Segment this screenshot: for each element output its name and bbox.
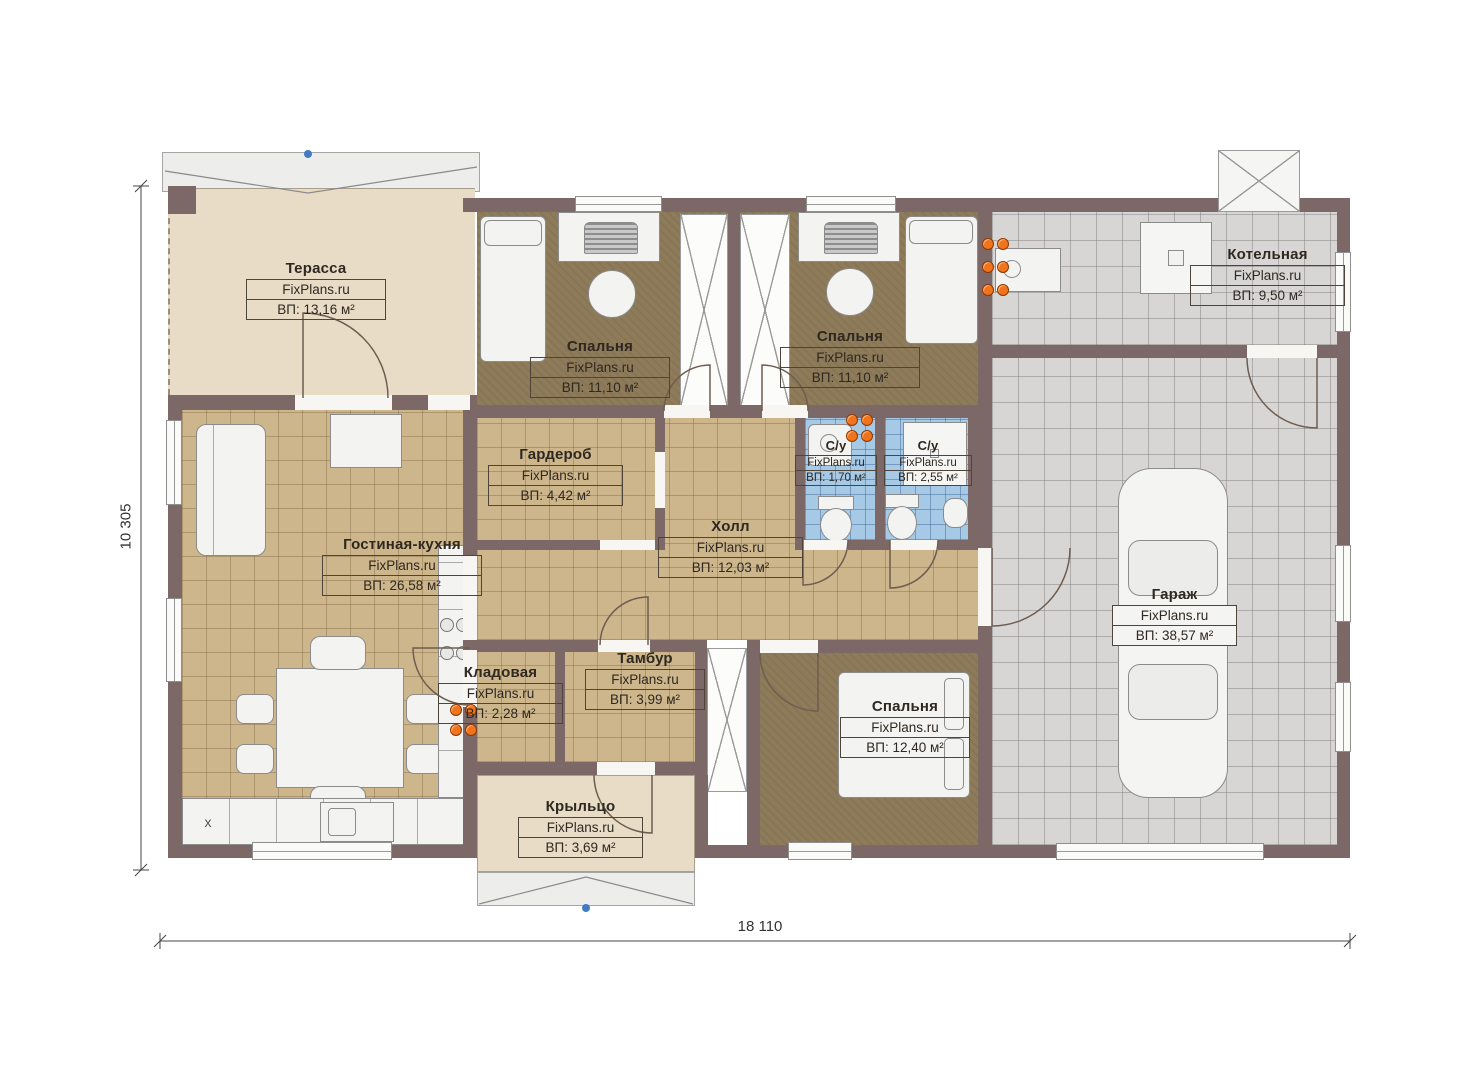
room-area: ВП: 3,69 м² [519, 838, 642, 857]
watermark-text: FixPlans.ru [1191, 266, 1344, 286]
wall-porch-side-left [463, 775, 477, 858]
doorway-bedroom-top-left [664, 405, 710, 418]
room-name: Тамбур [585, 650, 705, 667]
watermark-text: FixPlans.ru [323, 556, 481, 576]
watermark-text: FixPlans.ru [586, 670, 704, 690]
room-label-garage: Гараж FixPlans.ru ВП: 38,57 м² [1112, 586, 1237, 646]
doorway-hall-garage [978, 548, 992, 626]
doorway-bathroom-large [890, 540, 938, 550]
window-bedroom-top-right [806, 196, 896, 212]
doorway-boiler-garage [1247, 345, 1317, 358]
chair [236, 744, 274, 774]
room-name: Холл [658, 518, 803, 535]
room-name: Кладовая [438, 664, 563, 681]
floor-plan-canvas: x [0, 0, 1474, 1080]
wall-closet-bedroom [747, 653, 760, 845]
doorway-terrace [295, 395, 392, 410]
doorway-porch [597, 762, 655, 775]
room-name: Котельная [1190, 246, 1345, 263]
window-kitchen [252, 842, 392, 860]
porch-roof-overhang [477, 872, 695, 906]
window-bedroom-bottom [788, 842, 852, 860]
watermark-text: FixPlans.ru [796, 456, 876, 471]
room-name: С/у [884, 438, 972, 453]
watermark-text: FixPlans.ru [841, 718, 969, 738]
room-label-bedroom-top-right: Спальня FixPlans.ru ВП: 11,10 м² [780, 328, 920, 388]
closet-vestibule [707, 648, 747, 792]
doorway-bathroom-small [803, 540, 848, 550]
drain-center [1168, 250, 1184, 266]
room-label-living-kitchen: Гостиная-кухня FixPlans.ru ВП: 26,58 м² [322, 536, 482, 596]
toilet-bowl [820, 508, 852, 542]
car-rear-window [1128, 664, 1218, 720]
dimension-arrow [1344, 935, 1356, 947]
doorway-bedroom-bottom [760, 640, 818, 653]
dining-table [276, 668, 404, 788]
window-garage-1 [1335, 545, 1351, 622]
room-name: Гардероб [488, 446, 623, 463]
room-label-vestibule: Тамбур FixPlans.ru ВП: 3,99 м² [585, 650, 705, 710]
chair [236, 694, 274, 724]
room-name: Терасса [246, 260, 386, 277]
terrace-roof-overhang [162, 152, 480, 192]
room-area: ВП: 11,10 м² [781, 368, 919, 387]
room-label-bathroom-small: С/у FixPlans.ru ВП: 1,70 м² [795, 438, 877, 486]
chimney [1218, 150, 1300, 212]
watermark-text: FixPlans.ru [885, 456, 971, 471]
bath-sink [943, 498, 968, 528]
toilet-bowl [887, 506, 917, 540]
garage-door [1056, 843, 1264, 860]
room-name: Гостиная-кухня [322, 536, 482, 553]
opening-terrace-window [428, 395, 470, 410]
doorway-wardrobe [600, 540, 655, 550]
dimension-arrow [154, 935, 166, 947]
dimension-left-label: 10 305 [118, 477, 135, 577]
printer [824, 222, 878, 254]
room-area: ВП: 4,42 м² [489, 486, 622, 505]
room-name: Крыльцо [518, 798, 643, 815]
dimension-arrow [135, 180, 147, 192]
pillow [484, 220, 542, 246]
sideboard [330, 414, 402, 468]
window-living-1 [166, 420, 182, 505]
room-label-boiler: Котельная FixPlans.ru ВП: 9,50 м² [1190, 246, 1345, 306]
closet-bedroom-top-left [680, 214, 728, 406]
room-label-wardrobe: Гардероб FixPlans.ru ВП: 4,42 м² [488, 446, 623, 506]
dimension-bottom-label: 18 110 [700, 918, 820, 935]
watermark-text: FixPlans.ru [489, 466, 622, 486]
watermark-text: FixPlans.ru [247, 280, 385, 300]
pillow [909, 220, 973, 244]
room-name: Гараж [1112, 586, 1237, 603]
watermark-text: FixPlans.ru [659, 538, 802, 558]
stove-burner [440, 618, 454, 632]
window-living-2 [166, 598, 182, 682]
room-label-hall: Холл FixPlans.ru ВП: 12,03 м² [658, 518, 803, 578]
room-area: ВП: 13,16 м² [247, 300, 385, 319]
opening-wardrobe-right [655, 452, 665, 508]
sink-basin [328, 808, 356, 836]
room-label-bedroom-top-left: Спальня FixPlans.ru ВП: 11,10 м² [530, 338, 670, 398]
room-area: ВП: 12,40 м² [841, 738, 969, 757]
room-area: ВП: 3,99 м² [586, 690, 704, 709]
room-label-terrace: Терасса FixPlans.ru ВП: 13,16 м² [246, 260, 386, 320]
room-area: ВП: 38,57 м² [1113, 626, 1236, 645]
room-area: ВП: 2,28 м² [439, 704, 562, 723]
room-area: ВП: 11,10 м² [531, 378, 669, 397]
desk-stool [826, 268, 874, 316]
window-bedroom-top-left [575, 196, 662, 212]
room-label-porch: Крыльцо FixPlans.ru ВП: 3,69 м² [518, 798, 643, 858]
room-area: ВП: 2,55 м² [885, 471, 971, 485]
room-name: Спальня [840, 698, 970, 715]
dimension-arrow [135, 864, 147, 876]
room-label-bathroom-large: С/у FixPlans.ru ВП: 2,55 м² [884, 438, 972, 486]
wall-porch-side-right [695, 775, 708, 858]
printer [584, 222, 638, 254]
room-label-pantry: Кладовая FixPlans.ru ВП: 2,28 м² [438, 664, 563, 724]
room-area: ВП: 12,03 м² [659, 558, 802, 577]
cabinet-mark: x [205, 814, 212, 830]
room-area: ВП: 1,70 м² [796, 471, 876, 485]
kitchen-cabinet-x: x [184, 800, 232, 843]
room-area: ВП: 26,58 м² [323, 576, 481, 595]
watermark-text: FixPlans.ru [531, 358, 669, 378]
doorway-bedroom-top-right [762, 405, 808, 418]
room-name: С/у [795, 438, 877, 453]
room-name: Спальня [780, 328, 920, 345]
radiator-icon [982, 238, 1009, 307]
room-area: ВП: 9,50 м² [1191, 286, 1344, 305]
wall-vestibule-porch [463, 762, 707, 775]
watermark-text: FixPlans.ru [519, 818, 642, 838]
watermark-text: FixPlans.ru [439, 684, 562, 704]
watermark-text: FixPlans.ru [1113, 606, 1236, 626]
watermark-text: FixPlans.ru [781, 348, 919, 368]
room-name: Спальня [530, 338, 670, 355]
wall-between-bedrooms [728, 212, 740, 410]
sofa [196, 424, 266, 556]
terrace-column [168, 186, 196, 214]
desk-stool [588, 270, 636, 318]
window-garage-2 [1335, 682, 1351, 752]
chair [310, 636, 366, 670]
stove-burner [440, 646, 454, 660]
room-label-bedroom-bottom: Спальня FixPlans.ru ВП: 12,40 м² [840, 698, 970, 758]
